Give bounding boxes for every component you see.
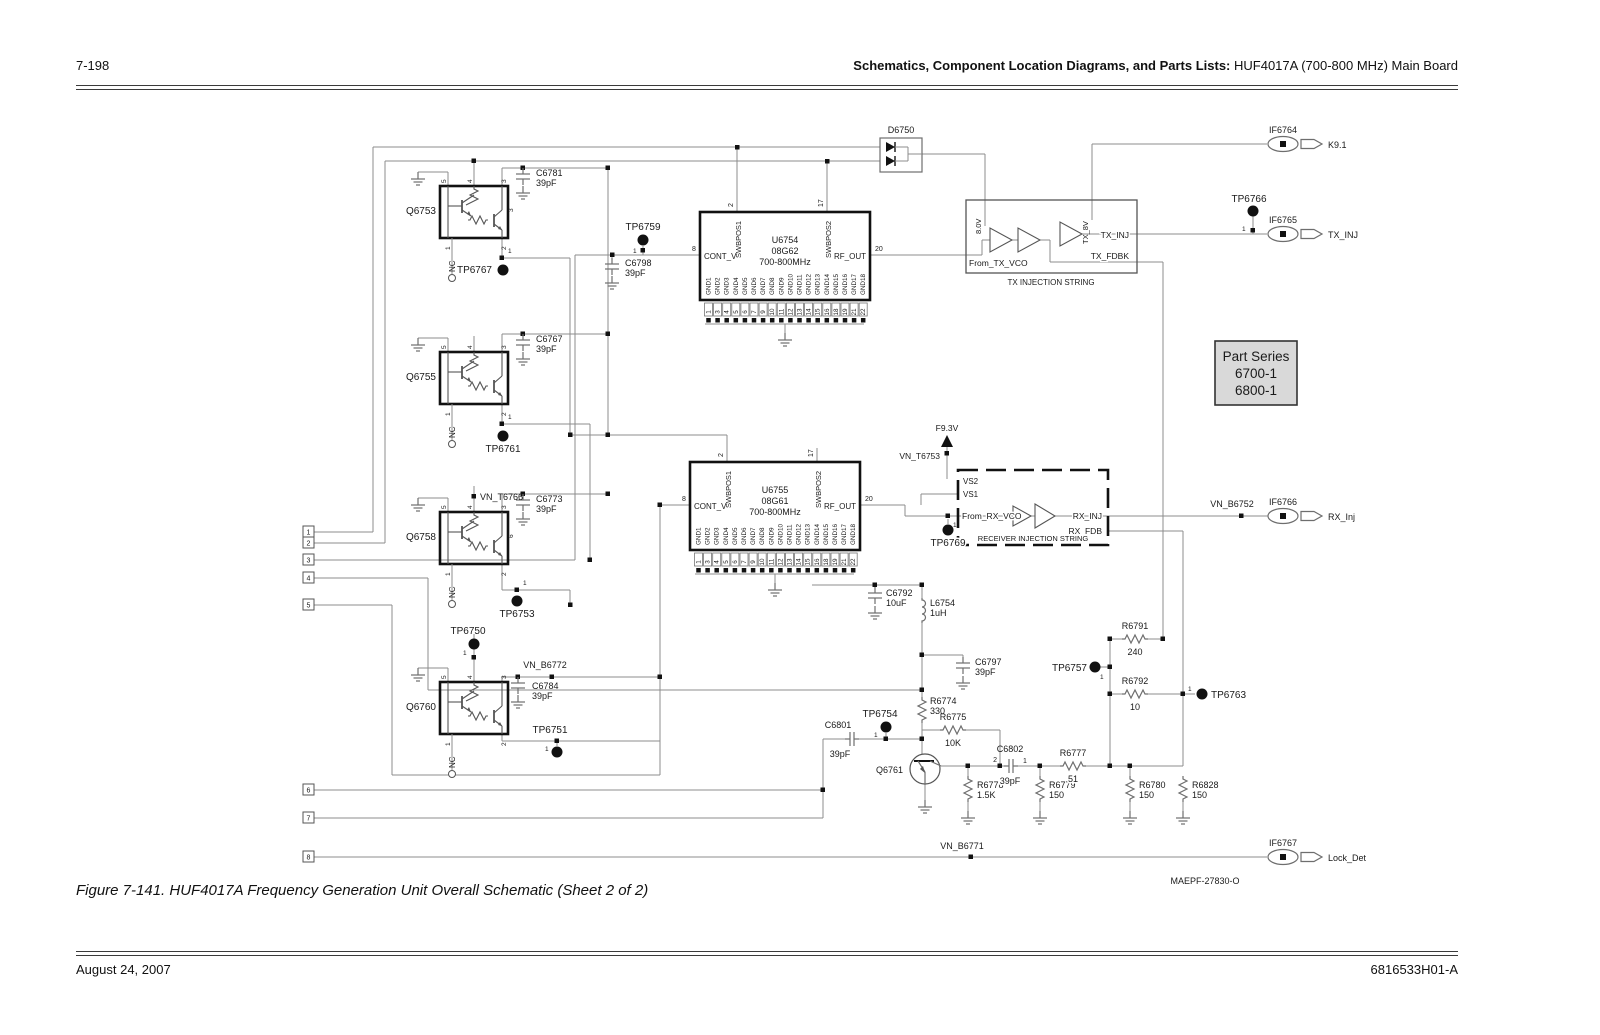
connector-pins: 1 2 3 4 5 6 7 8 — [303, 526, 314, 862]
tp6769-dot — [943, 525, 954, 536]
l6754-inductor — [922, 598, 926, 623]
ground-symbol — [768, 583, 782, 596]
q6758-pin1: 1 — [445, 572, 452, 576]
ic-pin-pad — [861, 318, 866, 323]
ground-symbol — [411, 498, 425, 511]
tp6761-node — [500, 422, 505, 427]
q6753-label: Q6753 — [406, 206, 436, 217]
ic-pin-pad — [705, 568, 710, 573]
c6773-label: C6773 — [536, 494, 563, 504]
vn-t6753-label: VN_T6753 — [899, 451, 940, 461]
r6791-resistor — [1122, 635, 1148, 643]
ic-pin-pad — [742, 568, 747, 573]
u6755-freq: 700-800MHz — [749, 507, 801, 517]
ic-gnd-pin-name: GND4 — [733, 277, 740, 295]
q6755-pin3: 3 — [501, 345, 508, 349]
vn-b6771-node — [969, 855, 974, 860]
connector-3: 3 — [307, 558, 311, 565]
amp-icon — [990, 228, 1012, 252]
rx-inj-output: RX_Inj — [1328, 512, 1355, 522]
ic-gnd-pin-name: GND14 — [814, 524, 821, 545]
ic-gnd-pin-name: GND6 — [751, 277, 758, 295]
tx-outputs: TP6766 1 IF6765 TX_INJ IF6764 K9.1 — [1231, 125, 1358, 242]
c6767-value: 39pF — [536, 344, 557, 354]
ground-symbol — [516, 512, 530, 525]
tp6753-node — [515, 588, 520, 593]
ic-pin-pad — [805, 568, 810, 573]
ic-gnd-pin-name: GND1 — [706, 277, 713, 295]
part-series-1: 6700-1 — [1235, 366, 1277, 381]
r6780-resistor — [1126, 776, 1134, 802]
ic-gnd-pin-number: 15 — [815, 308, 822, 316]
q6761-label: Q6761 — [876, 765, 903, 775]
ic-pin-pad — [833, 568, 838, 573]
ic-gnd-pin-number: 14 — [806, 308, 813, 316]
c6798-capacitor — [605, 258, 619, 275]
tx-inj-label: TX_INJ — [1101, 230, 1129, 240]
u6755-part: 08G61 — [761, 496, 788, 506]
ic-gnd-pin-number: 13 — [787, 558, 794, 566]
q6758-pin3: 3 — [501, 505, 508, 509]
if6765-bead — [1268, 227, 1298, 242]
q6758-pin2: 2 — [501, 572, 508, 576]
ground-symbol — [918, 800, 932, 813]
c6767-label: C6767 — [536, 334, 563, 344]
tx-8v-label: TX_8V — [1081, 221, 1090, 244]
ic-gnd-pin-name: GND9 — [768, 527, 775, 545]
q6760-pin1: 1 — [445, 742, 452, 746]
ic-gnd-pin-name: GND8 — [759, 527, 766, 545]
ic-gnd-pin-number: 3 — [715, 310, 722, 314]
tp6751-pin1: 1 — [545, 746, 549, 753]
ic-gnd-pin-name: GND6 — [741, 527, 748, 545]
ground-symbol — [956, 676, 970, 689]
nc-circle — [449, 771, 456, 778]
amp-icon — [1060, 222, 1082, 246]
k9-output: K9.1 — [1328, 140, 1347, 150]
q6753-pin2: 2 — [501, 246, 508, 250]
c6801-value: 39pF — [830, 749, 851, 759]
r6780-value: 150 — [1139, 790, 1154, 800]
ic-gnd-pin-name: GND7 — [750, 527, 757, 545]
ic-pin-pad — [761, 318, 766, 323]
ic-gnd-pin-number: 10 — [769, 308, 776, 316]
u6754-pin20: 20 — [875, 246, 883, 253]
u6755-rfout: RF_OUT — [824, 502, 856, 511]
ic-gnd-pin-number: 15 — [805, 558, 812, 566]
tp6767-label: TP6767 — [457, 265, 492, 276]
connector-1: 1 — [307, 530, 311, 537]
ground-symbol — [1123, 811, 1137, 824]
q6753-pin4: 4 — [467, 179, 474, 183]
ic-gnd-pin-number: 1 — [706, 310, 713, 314]
q6760-label: Q6760 — [406, 702, 436, 713]
if6764-bead — [1268, 137, 1298, 152]
if6765-label: IF6765 — [1269, 215, 1297, 225]
c6802-value: 39pF — [1000, 776, 1021, 786]
vn-t6753-node — [945, 451, 950, 456]
ground-symbol — [868, 606, 882, 619]
d6750-block: D6750 — [880, 125, 922, 172]
ground-symbol — [511, 695, 525, 708]
ic-pin-pad — [733, 568, 738, 573]
ic-gnd-pin-number: 4 — [714, 560, 721, 564]
output-arrow-icon — [1301, 140, 1322, 149]
u6754-ref: U6754 — [772, 235, 799, 245]
tp6759-pin1: 1 — [633, 248, 637, 255]
part-series-note: Part Series 6700-1 6800-1 — [1215, 341, 1297, 405]
tp6761-dot — [498, 431, 509, 442]
vn-t6766-label: VN_T6766 — [480, 492, 523, 502]
output-arrow-icon — [1301, 230, 1322, 239]
ic-pin-pad — [824, 568, 829, 573]
q6755-pin1: 1 — [445, 412, 452, 416]
ic-pin-pad — [752, 318, 757, 323]
c6781-value: 39pF — [536, 178, 557, 188]
ground-symbol — [778, 333, 792, 346]
if6766-label: IF6766 — [1269, 497, 1297, 507]
u6755-gnd-pins: GND11GND23GND34GND45GND56GND67GND79GND81… — [695, 524, 858, 573]
ic-gnd-pin-name: GND14 — [824, 274, 831, 295]
ic-pin-pad — [788, 318, 793, 323]
ic-gnd-pin-name: GND4 — [723, 527, 730, 545]
if6764-label: IF6764 — [1269, 125, 1297, 135]
ic-gnd-pin-name: GND11 — [787, 524, 794, 545]
q6755-label: Q6755 — [406, 372, 436, 383]
r6828-label: R6828 — [1192, 780, 1219, 790]
ic-gnd-pin-name: GND15 — [823, 524, 830, 545]
u6754-contv: CONT_V — [704, 252, 737, 261]
ic-pin-pad — [825, 318, 830, 323]
c6802-label: C6802 — [997, 744, 1024, 754]
q6753-nc-label: NC — [448, 260, 457, 272]
u6754-rfout: RF_OUT — [834, 252, 866, 261]
drawing-number: MAEPF-27830-O — [1170, 876, 1239, 886]
c6784-capacitor — [511, 677, 525, 694]
tx-supply-label: 8.0V — [974, 219, 983, 234]
ic-gnd-pin-number: 7 — [741, 560, 748, 564]
f9-3v-label: F9.3V — [936, 423, 959, 433]
c6802-capacitor — [1004, 759, 1018, 773]
output-arrow-icon — [1301, 512, 1322, 521]
ic-pin-pad — [852, 318, 857, 323]
r6791-value: 240 — [1127, 647, 1142, 657]
rx-string-title: RECEIVER INJECTION STRING — [978, 534, 1089, 543]
ic-gnd-pin-number: 5 — [723, 560, 730, 564]
u6755-swbpos1: SWBPOS1 — [724, 471, 733, 508]
ic-gnd-pin-name: GND3 — [724, 277, 731, 295]
ic-gnd-pin-number: 5 — [733, 310, 740, 314]
r6792-value: 10 — [1130, 702, 1140, 712]
ic-gnd-pin-number: 21 — [841, 558, 848, 566]
vn-b6772-node — [550, 675, 555, 680]
diode-icon — [886, 142, 895, 152]
q6760-block: Q6760 5 4 3 1 2 NC TP6750 1 C6784 39pF V… — [406, 626, 568, 778]
ground-symbol — [961, 811, 975, 824]
vn-b6772-label: VN_B6772 — [523, 660, 567, 670]
r6828-value: 150 — [1192, 790, 1207, 800]
ic-gnd-pin-name: GND18 — [860, 274, 867, 295]
tp6751-dot — [552, 747, 563, 758]
ground-symbol — [411, 338, 425, 351]
ic-gnd-pin-number: 7 — [751, 310, 758, 314]
output-arrow-icon — [1301, 853, 1322, 862]
tp6767-dot — [498, 265, 509, 276]
r6791-label: R6791 — [1122, 621, 1149, 631]
r6775-value: 10K — [945, 738, 961, 748]
q6758-block: Q6758 5 4 3 1 2 NC C6773 39pF 6 VN_T6766… — [406, 492, 563, 620]
connector-2: 2 — [307, 541, 311, 548]
ic-gnd-pin-name: GND18 — [850, 524, 857, 545]
part-series-2: 6800-1 — [1235, 383, 1277, 398]
connector-4: 4 — [307, 576, 311, 583]
q6755-block: Q6755 5 4 3 1 2 NC C6767 39pF TP6761 1 — [406, 334, 563, 455]
vn-b6752-label: VN_B6752 — [1210, 499, 1254, 509]
q6753-pin5: 5 — [441, 179, 448, 183]
if6767-label: IF6767 — [1269, 838, 1297, 848]
ic-gnd-pin-name: GND8 — [769, 277, 776, 295]
u6755-ref: U6755 — [762, 485, 789, 495]
ic-gnd-pin-number: 22 — [860, 308, 867, 316]
q6760-nc-label: NC — [448, 756, 457, 768]
tp6750-dot — [469, 639, 480, 650]
c6802-pin2: 2 — [993, 757, 997, 764]
r6778-resistor — [964, 776, 972, 802]
ic-pin-pad — [806, 318, 811, 323]
ic-pin-pad — [843, 318, 848, 323]
tp6761-pin1: 1 — [508, 414, 512, 421]
c6767-capacitor — [516, 334, 530, 351]
c6801-capacitor — [845, 732, 859, 746]
tp6753-pin1: 1 — [523, 580, 527, 587]
supply-arrow-icon — [941, 435, 953, 447]
rx-output: VN_B6752 IF6766 RX_Inj — [1210, 497, 1355, 524]
ic-pin-pad — [787, 568, 792, 573]
ic-pin-pad — [834, 318, 839, 323]
connector-8: 8 — [307, 855, 311, 862]
c6802-pin1: 1 — [1023, 758, 1027, 765]
r6777-resistor — [1060, 762, 1086, 770]
tp6769-node — [946, 514, 951, 519]
ic-pin-pad — [715, 318, 720, 323]
c6798-label: C6798 — [625, 258, 652, 268]
d6750-label: D6750 — [888, 125, 915, 135]
tp6769-label: TP6769 — [930, 538, 965, 549]
tx-string-title: TX INJECTION STRING — [1007, 278, 1094, 287]
vn-b6752-node — [1239, 514, 1244, 519]
q6760-pin2: 2 — [501, 742, 508, 746]
ic-gnd-pin-number: 12 — [787, 308, 794, 316]
tp6757-label: TP6757 — [1052, 663, 1087, 674]
tp6751-node — [555, 739, 560, 744]
tp6754-label: TP6754 — [862, 709, 897, 720]
r6780-label: R6780 — [1139, 780, 1166, 790]
nc-circle — [449, 441, 456, 448]
ic-pin-pad — [815, 318, 820, 323]
u6754-pin2: 2 — [728, 203, 735, 207]
vn-b6771-label: VN_B6771 — [940, 841, 984, 851]
ic-gnd-pin-name: GND9 — [778, 277, 785, 295]
c6797-capacitor — [956, 657, 970, 674]
part-series-title: Part Series — [1223, 349, 1290, 364]
r6792-resistor — [1122, 690, 1148, 698]
ic-gnd-pin-number: 10 — [759, 558, 766, 566]
q6758-pin5: 5 — [441, 505, 448, 509]
ic-gnd-pin-number: 22 — [850, 558, 857, 566]
q6755-pin2: 2 — [501, 412, 508, 416]
r6779-resistor — [1036, 776, 1044, 802]
ic-gnd-pin-number: 19 — [842, 308, 849, 316]
ic-pin-pad — [743, 318, 748, 323]
ic-gnd-pin-number: 16 — [814, 558, 821, 566]
ic-gnd-pin-name: GND16 — [842, 274, 849, 295]
tx-input-label: From_TX_VCO — [969, 258, 1028, 268]
r6792-label: R6792 — [1122, 676, 1149, 686]
tx-inj-output: TX_INJ — [1328, 230, 1358, 240]
tp6759-label: TP6759 — [625, 222, 660, 233]
ic-gnd-pin-number: 12 — [777, 558, 784, 566]
ic-gnd-pin-name: GND2 — [705, 527, 712, 545]
ic-pin-pad — [851, 568, 856, 573]
tp6769-pin1: 1 — [953, 522, 957, 529]
c6773-value: 39pF — [536, 504, 557, 514]
ground-symbol — [516, 352, 530, 365]
c6792-label: C6792 — [886, 588, 913, 598]
u6754-pin8: 8 — [692, 246, 696, 253]
q6753-block: Q6753 5 4 3 1 2 NC C6781 39pF 3 TP6767 1 — [406, 168, 563, 282]
if6766-bead — [1268, 509, 1298, 524]
ic-pin-pad — [769, 568, 774, 573]
ic-gnd-pin-number: 9 — [750, 560, 757, 564]
ic-gnd-pin-name: GND1 — [696, 527, 703, 545]
ic-gnd-pin-name: GND13 — [805, 524, 812, 545]
diode-icon — [886, 156, 895, 166]
ground-symbol — [605, 276, 619, 289]
ic-gnd-pin-name: GND11 — [797, 274, 804, 295]
q6760-pin4: 4 — [467, 675, 474, 679]
c6781-label: C6781 — [536, 168, 563, 178]
ground-symbol — [1033, 811, 1047, 824]
u6755-swbpos2: SWBPOS2 — [814, 471, 823, 508]
u6755-pin20: 20 — [865, 496, 873, 503]
tp6767-pin1: 1 — [508, 248, 512, 255]
schematic: Q6753 5 4 3 1 2 NC C6781 39pF 3 TP6767 1… — [0, 0, 1600, 1035]
amp-icon — [1035, 504, 1055, 528]
ic-pin-pad — [734, 318, 739, 323]
u6754-freq: 700-800MHz — [759, 257, 811, 267]
u6755-contv: CONT_V — [694, 502, 727, 511]
ic-gnd-pin-name: GND16 — [832, 524, 839, 545]
u6754-pin17: 17 — [818, 199, 825, 207]
c6792-capacitor — [868, 587, 882, 604]
bias-network: R6791 240 TP6757 1 R6792 10 1 TP6763 — [1052, 621, 1246, 712]
tp6750-pin1: 1 — [463, 650, 467, 657]
ic-gnd-pin-number: 6 — [732, 560, 739, 564]
ic-gnd-pin-name: GND17 — [851, 274, 858, 295]
ic-gnd-pin-name: GND5 — [732, 527, 739, 545]
rx-inj-label: RX_INJ — [1073, 511, 1102, 521]
ground-symbol — [1176, 811, 1190, 824]
q6755-pin5: 5 — [441, 345, 448, 349]
q6760-pin5: 5 — [441, 675, 448, 679]
vs1-label: VS1 — [963, 490, 979, 499]
connector-6: 6 — [307, 788, 311, 795]
if6767-bead — [1268, 850, 1298, 865]
ic-pin-pad — [778, 568, 783, 573]
q6755-pin4: 4 — [467, 345, 474, 349]
ic-gnd-pin-number: 18 — [823, 558, 830, 566]
ic-gnd-pin-number: 21 — [851, 308, 858, 316]
u6754-swbpos1: SWBPOS1 — [734, 221, 743, 258]
tp6759-dot — [638, 235, 649, 246]
rx-input-label: From_RX_VCO — [962, 511, 1022, 521]
tp6751-label: TP6751 — [532, 725, 567, 736]
tx-injection-string: 8.0V TX_8V From_TX_VCO TX_INJ TX_FDBK TX… — [966, 200, 1137, 287]
r6775-resistor — [940, 726, 966, 734]
c6784-value: 39pF — [532, 691, 553, 701]
tp6757-dot — [1090, 662, 1101, 673]
q6758-label: Q6758 — [406, 532, 436, 543]
tp6753-label: TP6753 — [499, 609, 534, 620]
c6781-pin3: 3 — [508, 208, 515, 212]
r6777-label: R6777 — [1060, 748, 1087, 758]
ic-gnd-pin-name: GND10 — [777, 524, 784, 545]
ic-pin-pad — [815, 568, 820, 573]
r6774-resistor — [918, 697, 926, 723]
ic-pin-pad — [724, 568, 729, 573]
ic-pin-pad — [696, 568, 701, 573]
c6801-label: C6801 — [825, 720, 852, 730]
c6784-label: C6784 — [532, 681, 559, 691]
tp6754-dot — [881, 722, 892, 733]
ic-gnd-pin-number: 19 — [832, 558, 839, 566]
ic-gnd-pin-name: GND12 — [806, 274, 813, 295]
nc-circle — [449, 601, 456, 608]
u6754-gnd-pins: GND11GND23GND34GND45GND56GND67GND79GND81… — [705, 274, 868, 323]
r6775-label: R6775 — [940, 712, 967, 722]
c6781-capacitor — [516, 168, 530, 185]
ic-gnd-pin-number: 18 — [833, 308, 840, 316]
ic-gnd-pin-name: GND3 — [714, 527, 721, 545]
ground-symbol — [411, 172, 425, 185]
amp-icon — [1018, 228, 1040, 252]
c6797-value: 39pF — [975, 667, 996, 677]
r6774-label: R6774 — [930, 696, 957, 706]
ic-gnd-pin-name: GND2 — [715, 277, 722, 295]
tp6750-node — [472, 655, 477, 660]
tp6763-label: TP6763 — [1211, 690, 1246, 701]
u6755-pin2: 2 — [718, 453, 725, 457]
ic-gnd-pin-name: GND10 — [787, 274, 794, 295]
ic-gnd-pin-number: 14 — [796, 558, 803, 566]
ic-pin-pad — [842, 568, 847, 573]
tx-fdbk-label: TX_FDBK — [1091, 251, 1130, 261]
ic-gnd-pin-number: 1 — [696, 560, 703, 564]
r6828-resistor — [1179, 776, 1187, 802]
ic-gnd-pin-number: 3 — [705, 560, 712, 564]
q6755-nc-label: NC — [448, 426, 457, 438]
ic-gnd-pin-number: 6 — [742, 310, 749, 314]
q6753-pin1: 1 — [445, 246, 452, 250]
tp6753-dot — [512, 596, 523, 607]
vs2-label: VS2 — [963, 477, 979, 486]
q6760-pin3: 3 — [501, 675, 508, 679]
q6753-pin3: 3 — [501, 179, 508, 183]
ic-pin-pad — [796, 568, 801, 573]
ic-gnd-pin-number: 4 — [724, 310, 731, 314]
l6754-label: L6754 — [930, 598, 955, 608]
tp6767-node — [500, 256, 505, 261]
